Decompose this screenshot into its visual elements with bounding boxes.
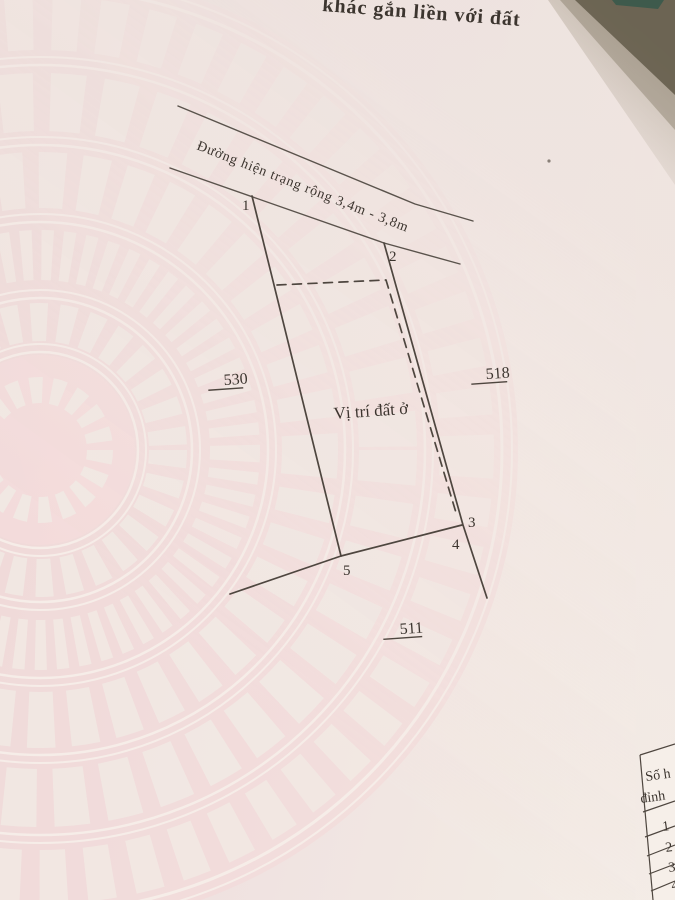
parcel-number-511-text: 511: [399, 620, 424, 639]
dust-speck: [547, 159, 550, 162]
exposure-fade-overlay: [0, 0, 675, 900]
drum-pattern-decoration: [0, 0, 675, 900]
vertex-label-1: 1: [242, 198, 250, 214]
vertex-table-row-3: 3: [667, 860, 675, 876]
parcel-number-530-text: 530: [223, 370, 248, 389]
vertex-label-4: 4: [452, 537, 460, 553]
vertex-label-2: 2: [389, 249, 397, 265]
parcel-number-518-text: 518: [485, 364, 510, 383]
vertex-label-5: 5: [343, 563, 351, 579]
cadastral-sketch-scene: khác gắn liền với đất Đường hiện trạng r…: [0, 0, 675, 900]
vertex-label-3: 3: [468, 515, 476, 531]
land-certificate-photo: khác gắn liền với đất Đường hiện trạng r…: [0, 0, 675, 900]
